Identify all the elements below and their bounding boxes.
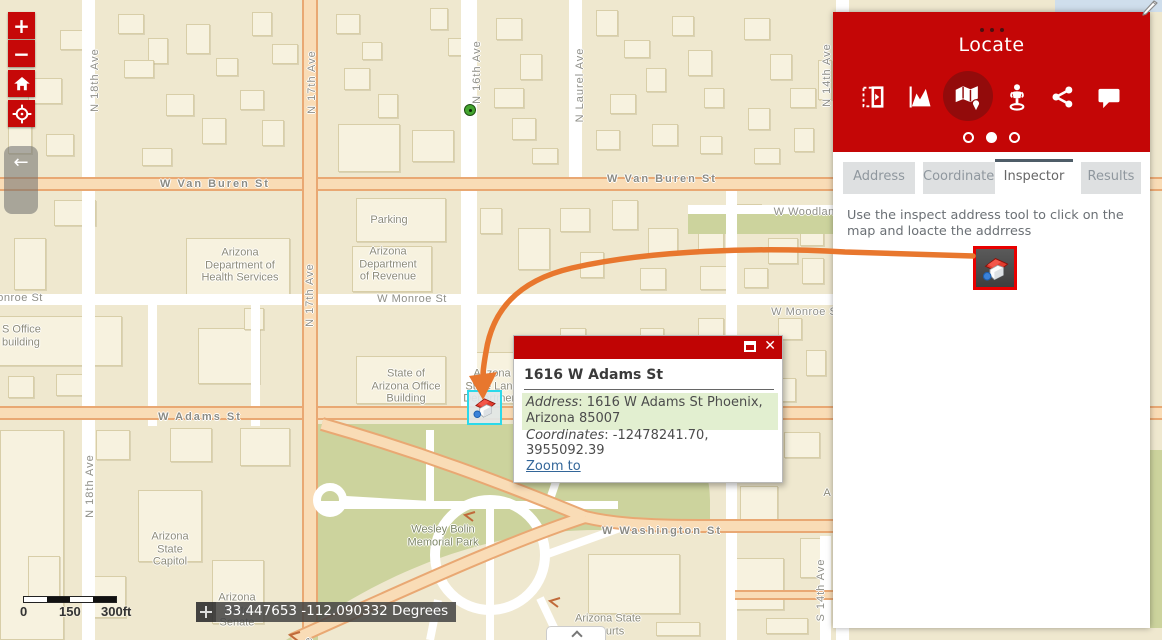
building — [744, 18, 770, 40]
tab-coordinates[interactable]: Coordinates — [923, 162, 999, 194]
tab-results[interactable]: Results — [1081, 162, 1141, 194]
building — [142, 148, 172, 166]
street-label: W Adams St — [158, 411, 242, 423]
building — [560, 208, 590, 232]
toggle-panel-icon[interactable] — [851, 74, 897, 120]
building — [56, 374, 84, 396]
panel-tabs: AddressCoordinatesInspectorResults — [833, 152, 1150, 198]
building — [272, 44, 298, 64]
building — [412, 130, 454, 162]
building — [784, 432, 820, 458]
place-label: A — [823, 487, 830, 500]
building — [216, 58, 238, 76]
street-label: S 17th Ave — [303, 636, 315, 640]
place-label: ArizonaDepartment ofHealth Services — [201, 246, 278, 284]
building — [512, 118, 536, 140]
panel-header: Locate — [833, 12, 1150, 152]
building — [672, 16, 694, 36]
person-icon[interactable] — [994, 74, 1040, 120]
zoom-in-button[interactable]: + — [8, 12, 35, 39]
place-label: ArizonaStateCapitol — [151, 530, 188, 568]
street-label: N 18th Ave — [89, 48, 101, 112]
street-label: W Van Buren St — [607, 173, 717, 185]
building — [700, 136, 722, 154]
popup-coordinates: Coordinates: -12478241.70, 3955092.39 — [522, 428, 778, 458]
street-label: N Laurel Ave — [574, 48, 586, 123]
building — [520, 54, 542, 80]
street-label: N 17th Ave — [306, 50, 318, 114]
building — [704, 88, 724, 108]
house-locator-icon — [471, 394, 498, 421]
building — [496, 18, 522, 40]
building — [748, 108, 770, 130]
bottom-panel-expand-button[interactable] — [546, 626, 606, 640]
widget-toolbar — [833, 74, 1150, 121]
building — [700, 266, 728, 290]
building — [480, 208, 502, 234]
scale-bar: 0 150 300ft — [23, 596, 119, 603]
building — [610, 94, 636, 114]
building — [754, 148, 780, 164]
zoom-out-button[interactable]: − — [8, 40, 35, 67]
building — [96, 430, 130, 460]
map-popup: ✕ 1616 W Adams St Address: 1616 W Adams … — [513, 335, 783, 483]
place-label: ArizonaDepartmentof Revenue — [359, 245, 416, 283]
building — [688, 50, 712, 76]
building — [240, 428, 290, 466]
building — [430, 8, 448, 30]
popup-title: 1616 W Adams St — [524, 367, 663, 383]
comment-icon[interactable] — [1086, 74, 1132, 120]
building — [766, 618, 808, 634]
pager-dot[interactable] — [986, 132, 997, 143]
toolbar-pager-dots — [833, 128, 1150, 147]
left-arrow-icon: ← — [13, 152, 28, 173]
building — [806, 350, 826, 376]
building — [0, 430, 64, 640]
street-label: N 14th Ave — [821, 43, 833, 107]
panel-title: Locate — [833, 34, 1150, 56]
tab-inspector[interactable]: Inspector — [995, 159, 1073, 194]
building — [378, 94, 398, 118]
building — [596, 130, 620, 150]
building — [46, 134, 74, 156]
building — [362, 42, 382, 60]
building — [518, 228, 550, 270]
home-icon — [12, 74, 32, 94]
pager-dot[interactable] — [963, 132, 974, 143]
locate-tool-icon[interactable] — [943, 71, 993, 121]
building — [60, 30, 84, 50]
building — [646, 68, 666, 92]
street-label: N 16th Ave — [471, 40, 483, 104]
home-button[interactable] — [8, 70, 35, 97]
coordinates-crosshair-icon[interactable] — [196, 602, 216, 622]
building — [344, 68, 370, 90]
building — [588, 554, 680, 614]
building — [652, 124, 678, 146]
instruction-text: Use the inspect address tool to click on… — [847, 208, 1152, 241]
building — [656, 622, 700, 636]
building — [338, 124, 400, 172]
green-point-marker — [464, 104, 476, 116]
app-viewport: W Van Buren StW Van Buren StW Woodland S… — [0, 0, 1162, 640]
building — [186, 24, 210, 54]
zoom-to-link[interactable]: Zoom to — [526, 459, 581, 474]
building — [580, 252, 604, 278]
edit-pencil-icon[interactable] — [1140, 0, 1160, 18]
building — [532, 148, 558, 164]
gps-locate-button[interactable] — [8, 100, 35, 127]
place-label: S Officebuilding — [2, 324, 41, 349]
building — [790, 88, 816, 108]
street-label: W Washington St — [602, 525, 722, 537]
popup-titlebar[interactable]: ✕ — [514, 336, 782, 359]
building — [8, 376, 34, 398]
chevron-up-icon — [571, 630, 582, 640]
popup-divider — [524, 389, 774, 390]
maximize-icon[interactable] — [744, 341, 756, 352]
building — [252, 12, 272, 36]
building — [802, 258, 824, 284]
building — [794, 128, 814, 152]
tab-address[interactable]: Address — [843, 162, 915, 194]
building — [166, 94, 194, 116]
building — [336, 14, 360, 34]
building — [740, 486, 778, 520]
inspect-address-tool-button[interactable] — [973, 246, 1017, 290]
street-label: W Van Buren St — [160, 178, 270, 190]
share-icon[interactable] — [1040, 74, 1086, 120]
street-label: W Monroe St — [0, 292, 43, 304]
building — [648, 228, 678, 254]
building — [768, 238, 798, 264]
popup-address: Address: 1616 W Adams St Phoenix, Arizon… — [522, 393, 778, 430]
building — [262, 120, 284, 146]
building — [640, 268, 666, 290]
house-locator-icon — [980, 253, 1011, 284]
place-label: Parking — [370, 214, 407, 227]
chart-icon[interactable] — [897, 74, 943, 120]
sidebar-collapse-handle[interactable]: ← — [4, 146, 38, 214]
street-label: N 17th Ave — [304, 263, 316, 327]
park-sliver — [1148, 450, 1162, 628]
building — [118, 14, 144, 34]
place-label: State ofArizona OfficeBuilding — [372, 367, 441, 405]
building — [624, 40, 650, 58]
crosshair-icon — [11, 103, 33, 125]
close-icon[interactable]: ✕ — [764, 338, 776, 354]
street-label: N 18th Ave — [84, 454, 96, 518]
street-label: S 14th Ave — [815, 558, 827, 621]
pager-dot[interactable] — [1009, 132, 1020, 143]
coordinates-readout: 33.447653 -112.090332 Degrees — [196, 602, 456, 622]
locate-widget-panel: Locate — [833, 12, 1150, 628]
street-label: W Monroe St — [377, 293, 447, 305]
building — [698, 232, 724, 252]
building — [124, 60, 154, 78]
building — [596, 10, 618, 36]
building — [240, 90, 264, 110]
building — [202, 118, 226, 144]
building — [14, 238, 46, 290]
street-label: W Monroe St — [771, 306, 841, 318]
inspect-result-pin[interactable] — [467, 390, 502, 425]
building — [770, 54, 792, 80]
building — [744, 268, 768, 288]
building — [170, 428, 212, 462]
building — [612, 200, 638, 230]
place-label: Wesley BolinMemorial Park — [408, 524, 479, 549]
building — [494, 88, 524, 108]
